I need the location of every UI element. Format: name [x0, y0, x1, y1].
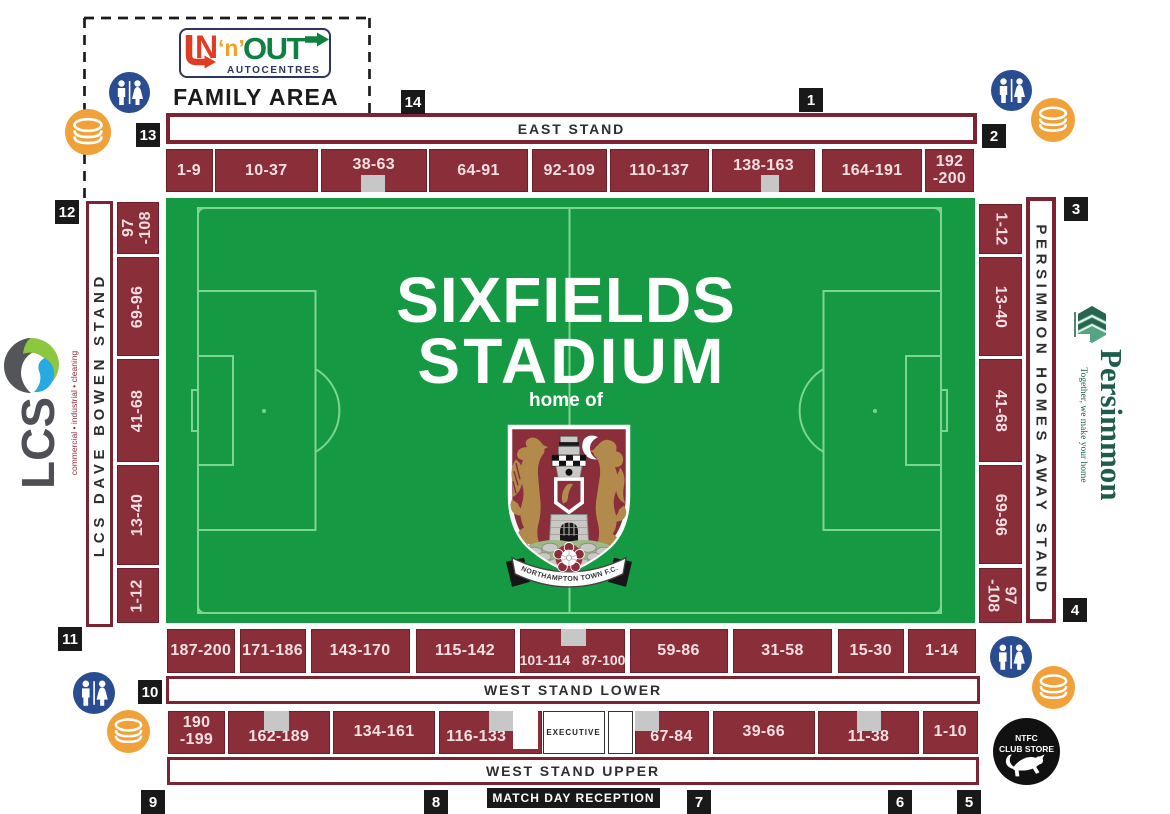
svg-text:OUT: OUT: [243, 31, 306, 66]
svg-text:‘n’: ‘n’: [218, 35, 245, 61]
svg-text:NTFC: NTFC: [1015, 733, 1038, 743]
svg-text:AUTOCENTRES: AUTOCENTRES: [227, 65, 321, 76]
svg-text:N: N: [195, 29, 218, 65]
svg-text:CLUB STORE: CLUB STORE: [999, 744, 1054, 754]
